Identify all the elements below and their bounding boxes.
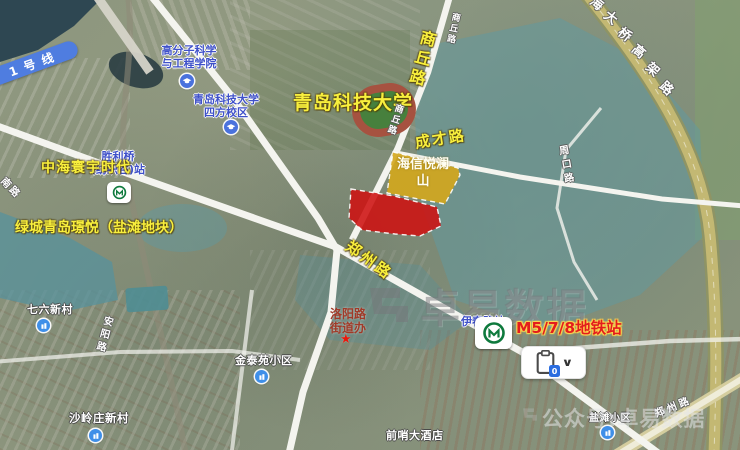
hisense-zone-line2: 山 <box>389 174 457 191</box>
hisense-zone-line1: 海信悦澜 <box>389 157 457 174</box>
community-poi-icon <box>89 429 102 442</box>
qust-campus-line1: 青岛科技大学 <box>193 94 259 107</box>
qust-campus-line2: 四方校区 <box>193 107 259 120</box>
m578-station-annotation: M5/7/8地铁站 <box>516 320 622 338</box>
lvcheng-annotation: 绿城青岛璟悦（盐滩地块） <box>15 220 183 236</box>
community-poi-icon <box>37 319 50 332</box>
zhonghai-annotation: 中海寰宇时代 <box>41 160 131 176</box>
metro-logo-icon <box>107 182 131 203</box>
community-poi-icon <box>255 370 268 383</box>
clipboard-count-badge: 0 <box>549 365 560 377</box>
luoyang-office-line1: 洛阳路 <box>327 307 369 321</box>
school-icon <box>224 120 238 134</box>
polymer-college-line2: 与工程学院 <box>155 58 223 71</box>
community-poi-icon <box>601 426 614 439</box>
polymer-college-label: 高分子科学 与工程学院 <box>155 45 223 70</box>
clipboard-button[interactable]: 0 ∨ <box>521 346 586 379</box>
watermark-logo-small <box>521 406 539 423</box>
jintai-community-label: 金泰苑小区 <box>235 355 293 368</box>
sports-court <box>125 286 169 313</box>
chevron-down-icon[interactable]: ∨ <box>562 356 574 369</box>
hisense-zone-label: 海信悦澜 山 <box>389 157 457 191</box>
qiliu-village-label: 七六新村 <box>27 304 73 317</box>
qianshao-hotel-label: 前哨大酒店 <box>386 430 444 443</box>
polymer-college-line1: 高分子科学 <box>155 45 223 58</box>
road-minor-vertical <box>231 290 252 450</box>
shaling-village-label: 沙岭庄新村 <box>69 412 129 425</box>
map-screenshot: 卓易数据 1号线 胜利桥 (纺织谷)站 高分子科学 与工程学院 青岛科技大学 四… <box>0 0 740 450</box>
school-icon <box>180 74 194 88</box>
metro-logo-icon <box>475 317 512 349</box>
star-icon: ★ <box>340 332 352 347</box>
map-canvas[interactable]: 卓易数据 1号线 胜利桥 (纺织谷)站 高分子科学 与工程学院 青岛科技大学 四… <box>0 0 740 450</box>
clipboard-icon: 0 <box>535 350 556 375</box>
yantan-community-label: 盐滩小区 <box>589 413 631 425</box>
qust-campus-label: 青岛科技大学 四方校区 <box>193 94 259 119</box>
